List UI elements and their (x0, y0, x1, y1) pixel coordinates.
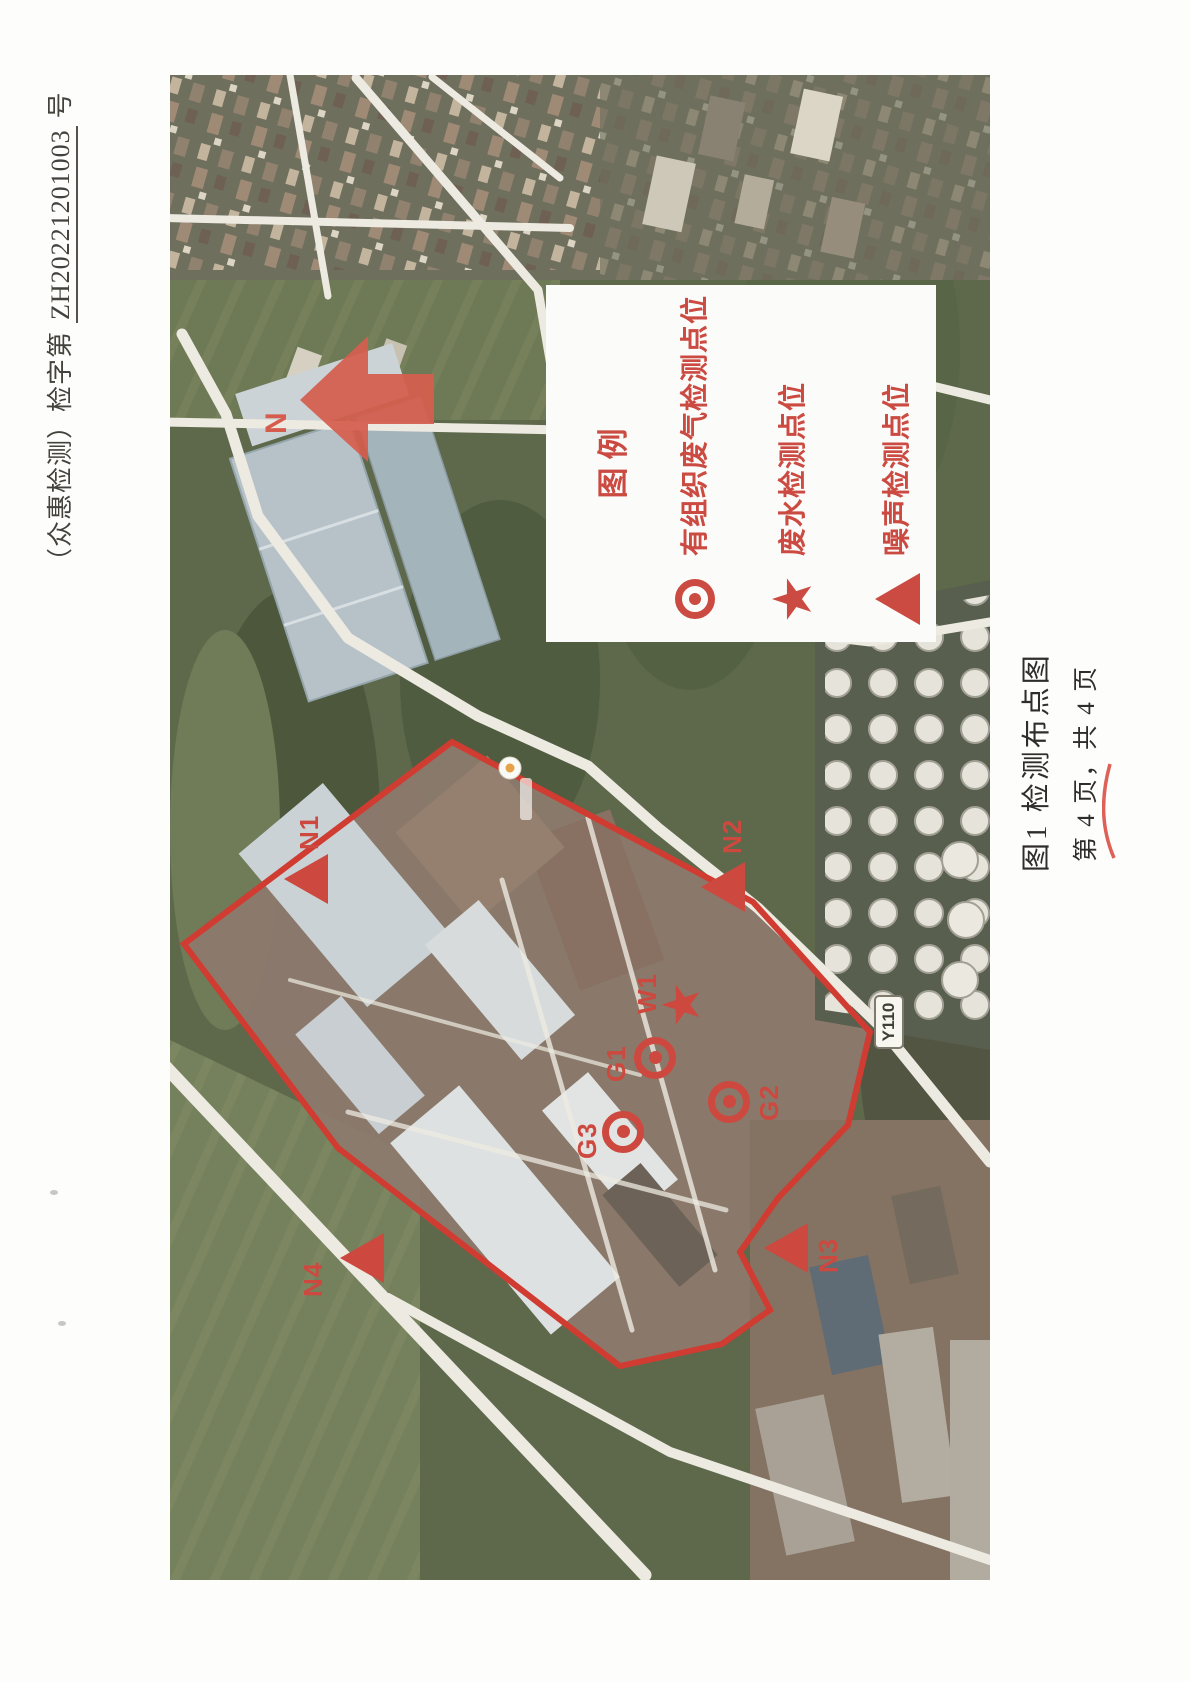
legend-item-waste-gas: 有组织废气检测点位 (666, 295, 724, 628)
noise-marker-icon-n2 (701, 862, 745, 912)
marker-label-g3: G3 (574, 1122, 600, 1159)
marker-label-g2: G2 (756, 1084, 782, 1121)
waste-gas-circle-icon-g1 (634, 1037, 676, 1079)
legend-item-label: 有组织废气检测点位 (681, 295, 709, 556)
wastewater-legend-icon: ★ (766, 570, 820, 628)
report-header: （众惠检测）检字第ZH20221201003号 (44, 91, 78, 574)
red-check-mark (1102, 760, 1118, 860)
marker-label-n2: N2 (719, 819, 745, 854)
north-label: N (262, 412, 292, 434)
satellite-site-map: N N1 N2 N3 N4 W1 ★ G1 G2 G3 Y110 图例 (170, 75, 990, 1580)
marker-label-n4: N4 (300, 1262, 326, 1297)
wastewater-star-icon: ★ (656, 981, 708, 1028)
marker-label-n3: N3 (815, 1238, 841, 1273)
legend-item-noise: 噪声检测点位 (868, 382, 926, 628)
scan-speck (50, 1190, 58, 1195)
map-legend: 图例 有组织废气检测点位 ★ 废水检测点位 噪声检测点位 (546, 285, 936, 642)
scanned-report-page: （众惠检测）检字第ZH20221201003号 (0, 0, 1190, 1682)
legend-title: 图例 (598, 285, 629, 642)
scan-speck (58, 1321, 66, 1326)
legend-item-label: 废水检测点位 (779, 382, 807, 556)
noise-legend-icon (875, 570, 920, 628)
marker-label-n1: N1 (296, 815, 322, 850)
waste-gas-circle-icon-g2 (708, 1081, 750, 1123)
waste-gas-legend-icon (675, 570, 715, 628)
noise-marker-icon-n3 (764, 1223, 808, 1273)
header-suffix: 号 (46, 91, 75, 118)
header-prefix: （众惠检测）检字第 (46, 331, 75, 574)
legend-item-label: 噪声检测点位 (883, 382, 911, 556)
report-number: ZH20221201003 (46, 126, 78, 323)
noise-marker-icon-n4 (340, 1233, 384, 1283)
rotated-figure-content: （众惠检测）检字第ZH20221201003号 (0, 0, 1190, 1682)
waste-gas-circle-icon-g3 (602, 1111, 644, 1153)
noise-marker-icon-n1 (284, 854, 328, 904)
road-badge: Y110 (874, 995, 904, 1049)
figure-caption: 图1 检测布点图 (1020, 652, 1055, 872)
marker-label-g1: G1 (603, 1045, 629, 1082)
legend-item-wastewater: ★ 废水检测点位 (764, 382, 822, 628)
page-indicator: 第 4 页，共 4 页 (1072, 665, 1102, 862)
